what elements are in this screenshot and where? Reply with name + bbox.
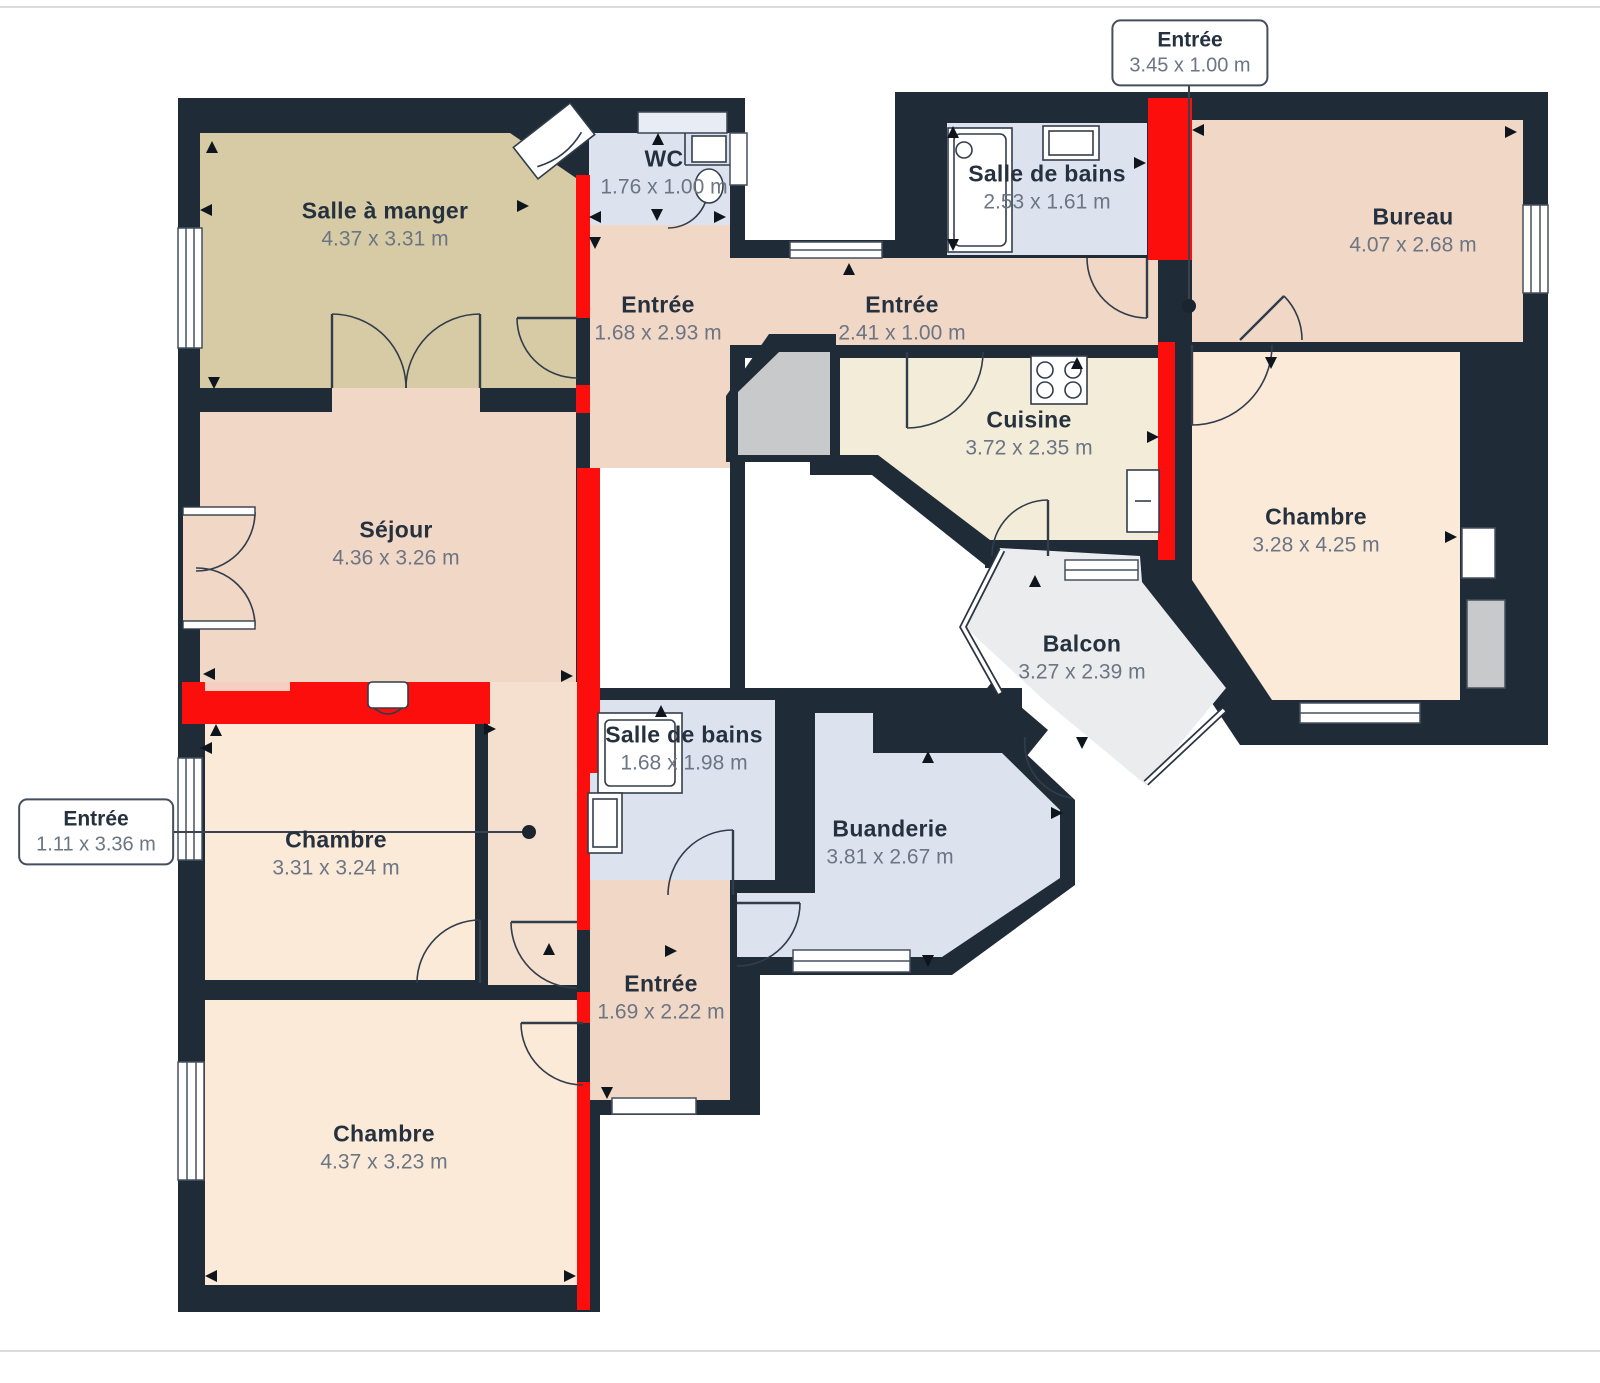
bathroom-mid-shower <box>598 713 682 793</box>
room-fill-bureau <box>1192 120 1523 342</box>
room-fill-entree-bas <box>590 880 730 1100</box>
room-fill-chambre-bas <box>205 1000 577 1285</box>
room-fill-cuisine <box>840 358 1158 540</box>
floorplan-canvas: Salle à manger 4.37 x 3.31 m WC 1.76 x 1… <box>0 0 1600 1383</box>
callout-name: Entrée <box>36 807 156 831</box>
bathroom-top-shower <box>948 128 1012 252</box>
floorplan-drawing <box>0 0 1600 1383</box>
room-fill-sejour <box>200 412 576 682</box>
sejour-door-opening <box>332 388 480 414</box>
room-fill-chambre-gauche <box>205 724 475 980</box>
wc-sink-top <box>638 112 727 133</box>
bathroom-top-sink <box>1043 126 1099 160</box>
room-fill-entree-couloir <box>730 258 1158 345</box>
callout-dims: 3.45 x 1.00 m <box>1129 55 1250 78</box>
radiator-strip <box>205 682 290 691</box>
room-fill-entree-haut <box>590 225 730 468</box>
callout-dims: 1.11 x 3.36 m <box>36 834 156 857</box>
callout-entree-mur-gauche: Entrée 1.11 x 3.36 m <box>18 798 174 865</box>
sejour-french-door-opening <box>183 508 208 625</box>
room-fill-salle-a-manger <box>200 133 576 388</box>
bathroom-mid-sink <box>588 793 622 853</box>
callout-entree-mur-haut: Entrée 3.45 x 1.00 m <box>1111 19 1268 86</box>
callout-name: Entrée <box>1129 28 1250 52</box>
kitchen-fridge <box>1127 470 1159 532</box>
